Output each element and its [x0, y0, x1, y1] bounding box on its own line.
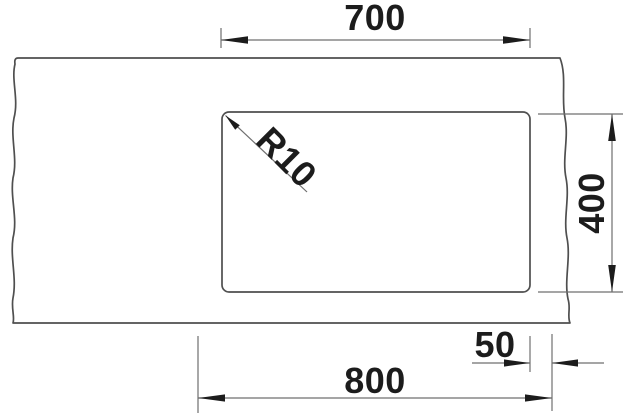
arrowhead-left-icon — [221, 36, 248, 44]
technical-drawing-canvas: 700 400 R10 50 — [0, 0, 625, 414]
arrowhead-right-icon — [503, 36, 530, 44]
arrowhead-bottom-icon — [608, 265, 616, 292]
dimension-cutout-depth: 400 — [538, 114, 623, 292]
dimension-label-cutout-width: 700 — [344, 0, 406, 38]
dimension-label-cabinet-width: 800 — [344, 360, 406, 401]
dimension-label-cutout-depth: 400 — [571, 172, 612, 234]
technical-drawing-page: 700 400 R10 50 — [0, 0, 625, 414]
dimension-cutout-width: 700 — [221, 0, 530, 48]
arrowhead-left-pointing-icon — [552, 359, 578, 366]
arrowhead-top-icon — [608, 114, 616, 141]
arrowhead-left-icon — [198, 394, 225, 401]
dimension-label-side-clearance: 50 — [474, 324, 515, 365]
arrowhead-right-icon — [525, 394, 552, 401]
